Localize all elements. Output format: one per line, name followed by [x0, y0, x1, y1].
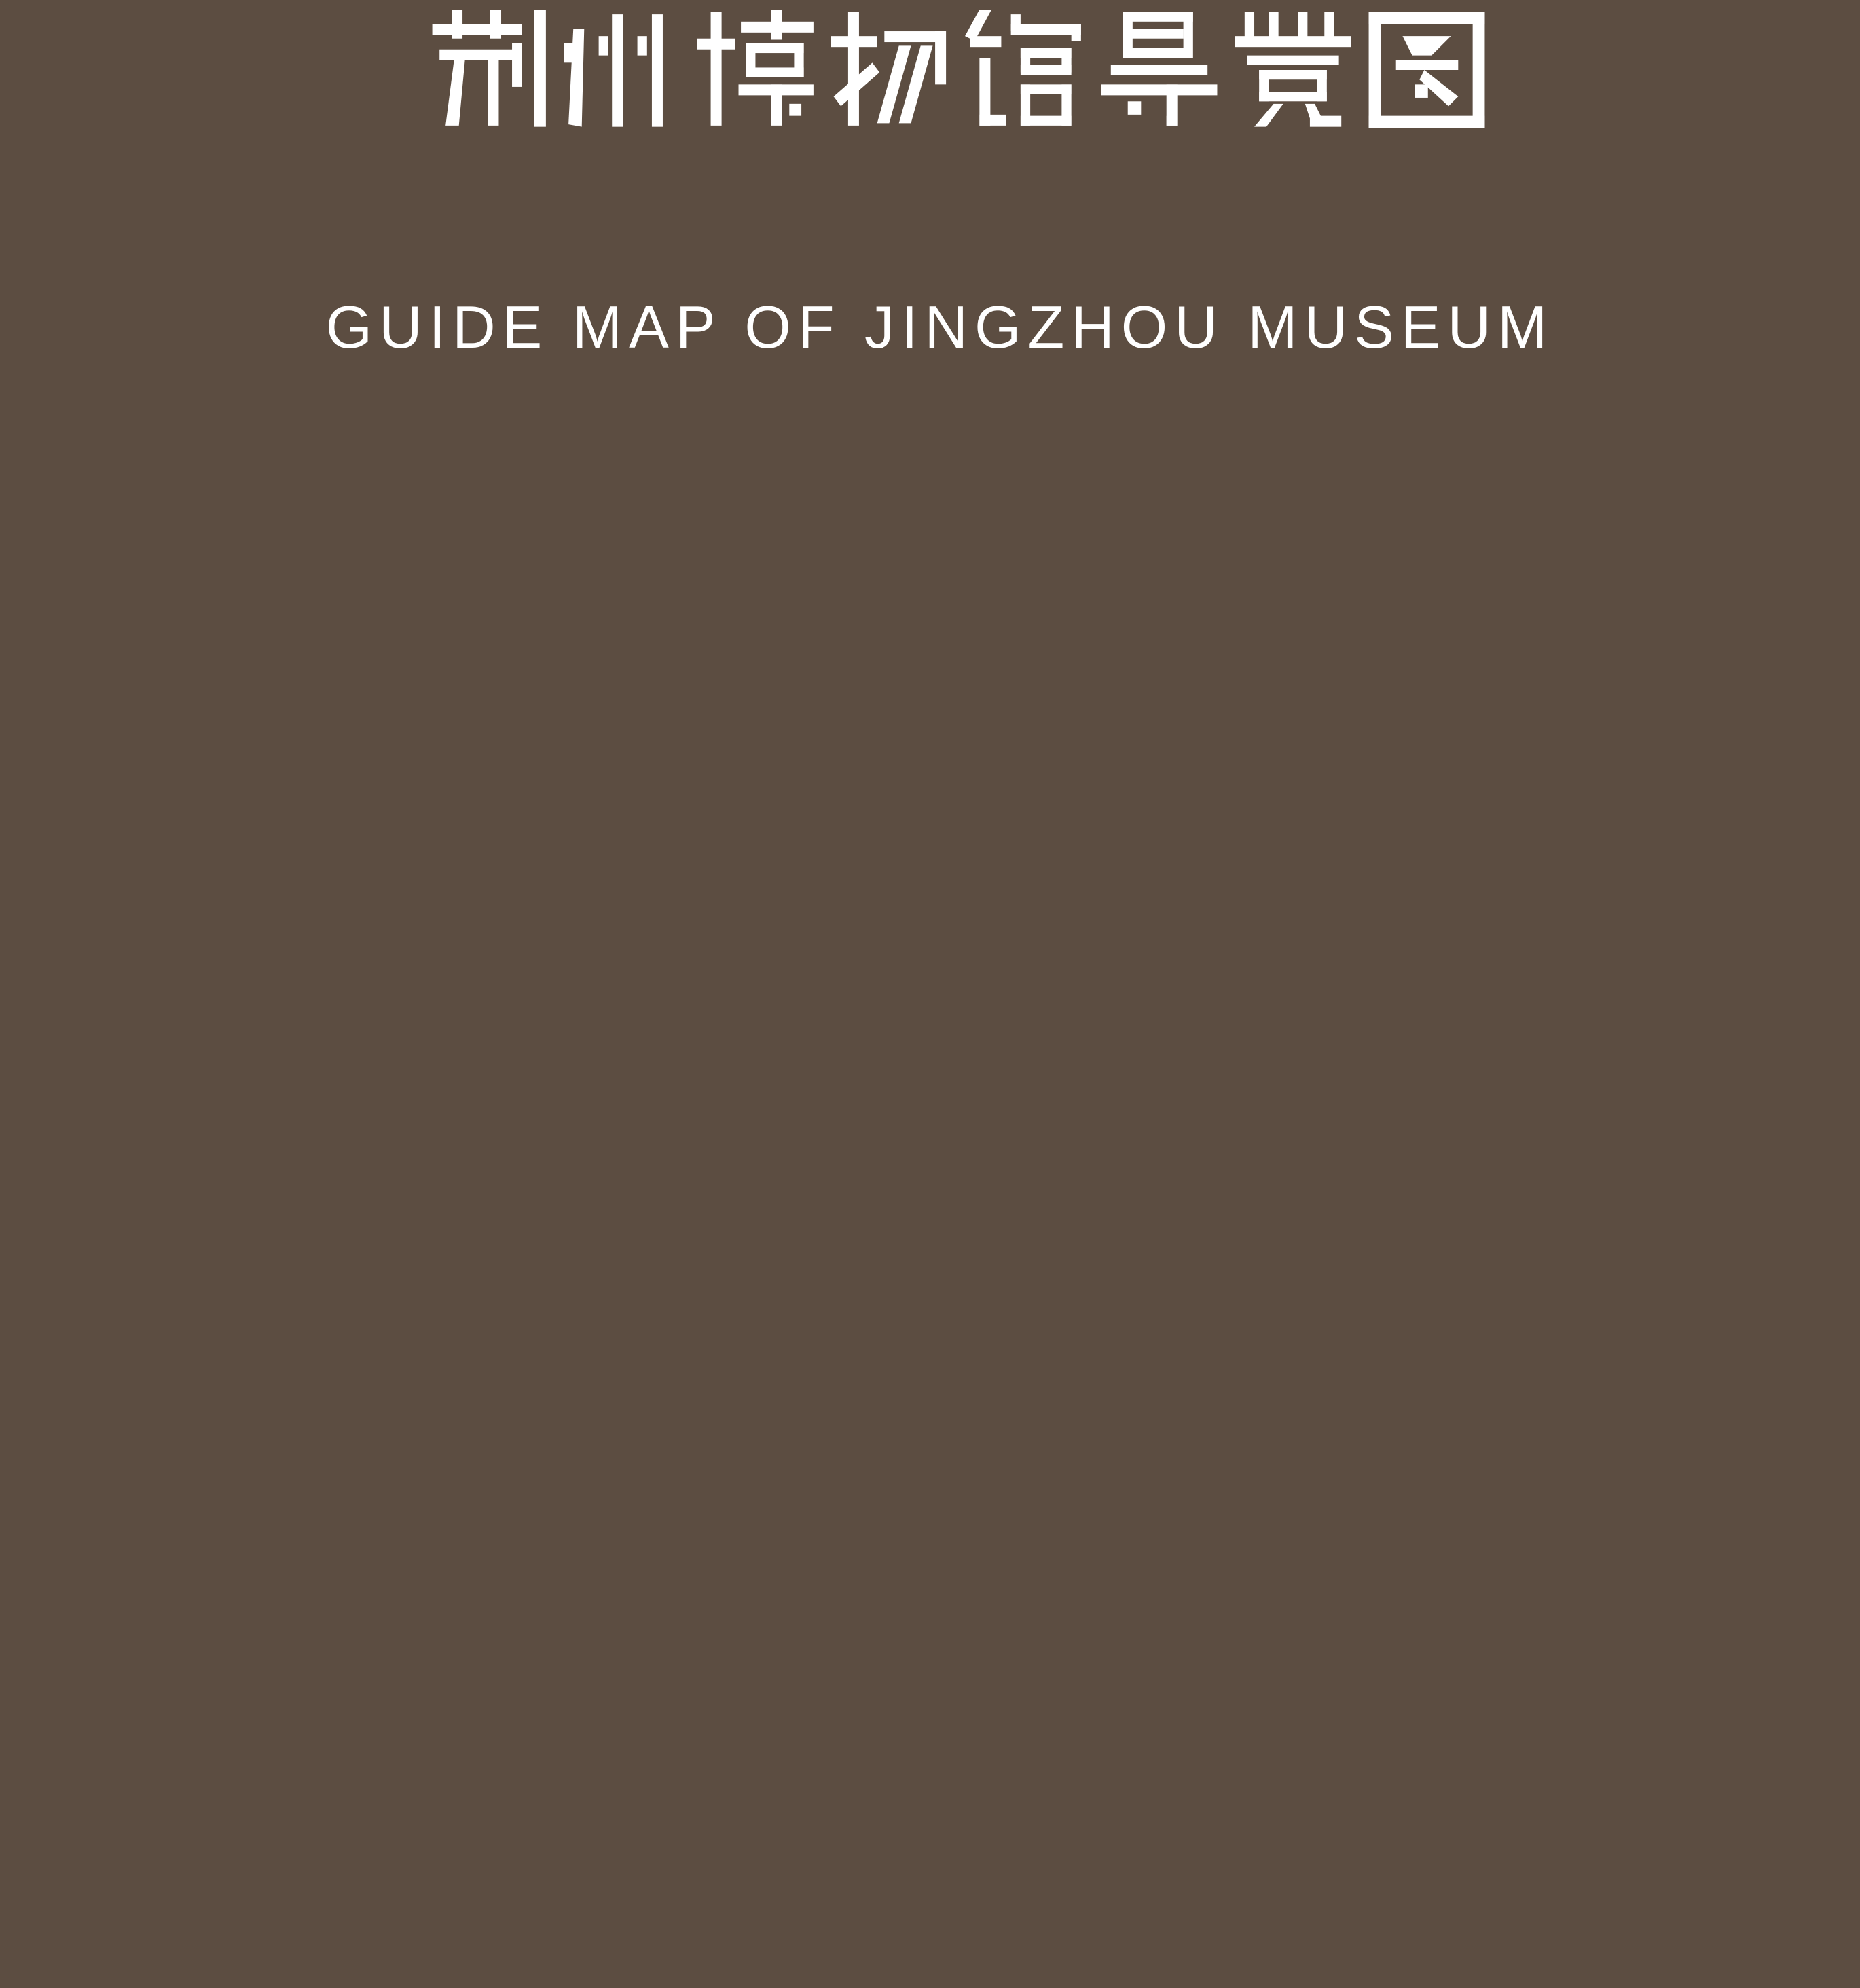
svg-text:GUIDE MAP OF JINGZHOU MUSEUM: GUIDE MAP OF JINGZHOU MUSEUM	[326, 293, 1554, 361]
